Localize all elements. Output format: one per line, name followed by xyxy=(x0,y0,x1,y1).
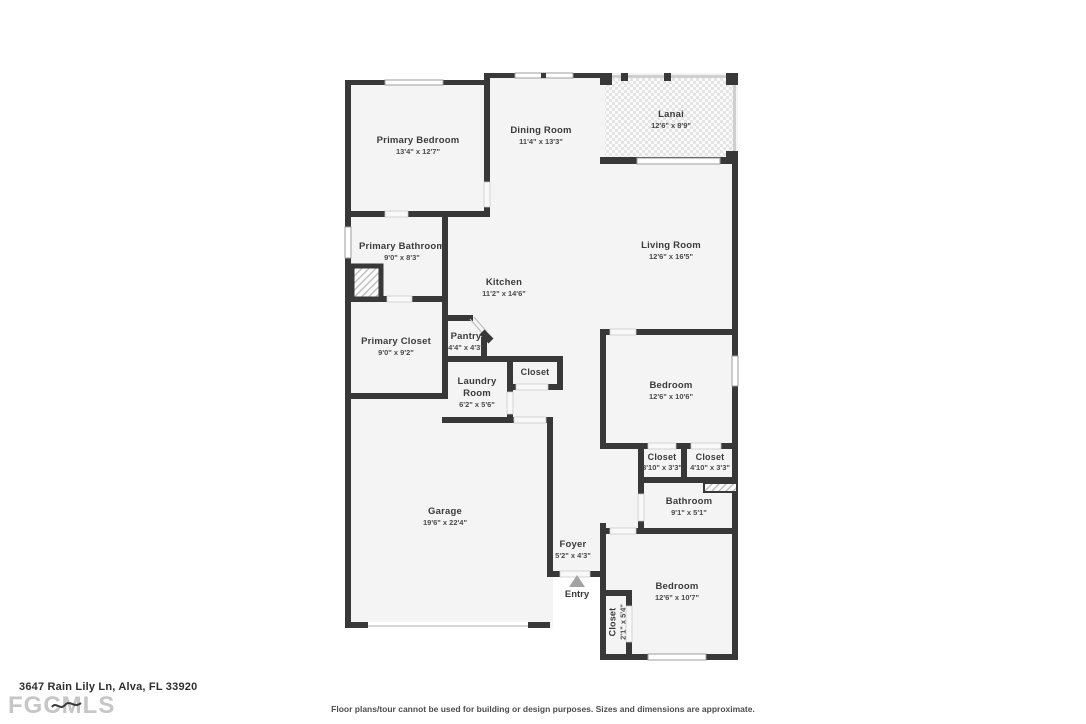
entry-label: Entry xyxy=(565,589,589,600)
lanai-floor xyxy=(605,77,736,162)
garage-door xyxy=(368,622,528,628)
floorplan-page: Primary Bedroom 13'4" x 12'7" Dining Roo… xyxy=(0,0,1086,724)
room-label-bedroom3-closet: Closet 2'1" x 5'4" xyxy=(608,604,629,640)
shower xyxy=(352,266,381,299)
disclaimer-text: Floor plans/tour cannot be used for buil… xyxy=(0,704,1086,714)
window-mullion xyxy=(541,73,546,78)
floorplan-drawing xyxy=(0,0,1086,724)
glass-partition xyxy=(704,483,737,492)
